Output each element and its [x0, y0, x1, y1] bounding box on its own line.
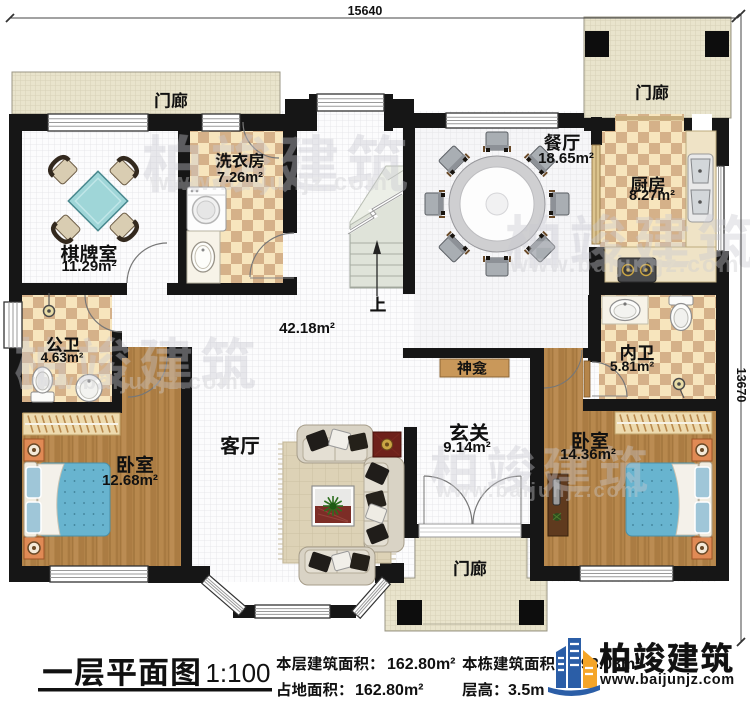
svg-text:162.80m²: 162.80m² [355, 682, 424, 699]
svg-text:12.68m²: 12.68m² [102, 472, 158, 489]
svg-text:13670: 13670 [734, 368, 748, 403]
svg-text:1:100: 1:100 [205, 658, 270, 688]
svg-text:42.18m²: 42.18m² [279, 320, 335, 337]
svg-text:5.81m²: 5.81m² [610, 358, 655, 374]
svg-text:www.baijunjz.com: www.baijunjz.com [509, 251, 741, 277]
svg-text:3.5m: 3.5m [508, 682, 544, 699]
svg-text:9.14m²: 9.14m² [443, 439, 491, 456]
svg-text:www.baijunjz.com: www.baijunjz.com [435, 480, 641, 502]
svg-text:www.baijunjz.com: www.baijunjz.com [149, 169, 389, 196]
svg-text:162.80m²: 162.80m² [387, 656, 456, 673]
svg-text:www.baijunjz.com: www.baijunjz.com [17, 369, 240, 394]
svg-text:15640: 15640 [348, 4, 383, 18]
svg-text:7.26m²: 7.26m² [217, 170, 263, 186]
svg-text:14.36m²: 14.36m² [560, 446, 616, 463]
svg-text:www.baijunjz.com: www.baijunjz.com [599, 672, 735, 688]
svg-text:11.29m²: 11.29m² [61, 258, 116, 275]
svg-text:18.65m²: 18.65m² [538, 150, 594, 167]
svg-text:8.27m²: 8.27m² [629, 188, 675, 204]
svg-text:4.63m²: 4.63m² [41, 350, 84, 365]
